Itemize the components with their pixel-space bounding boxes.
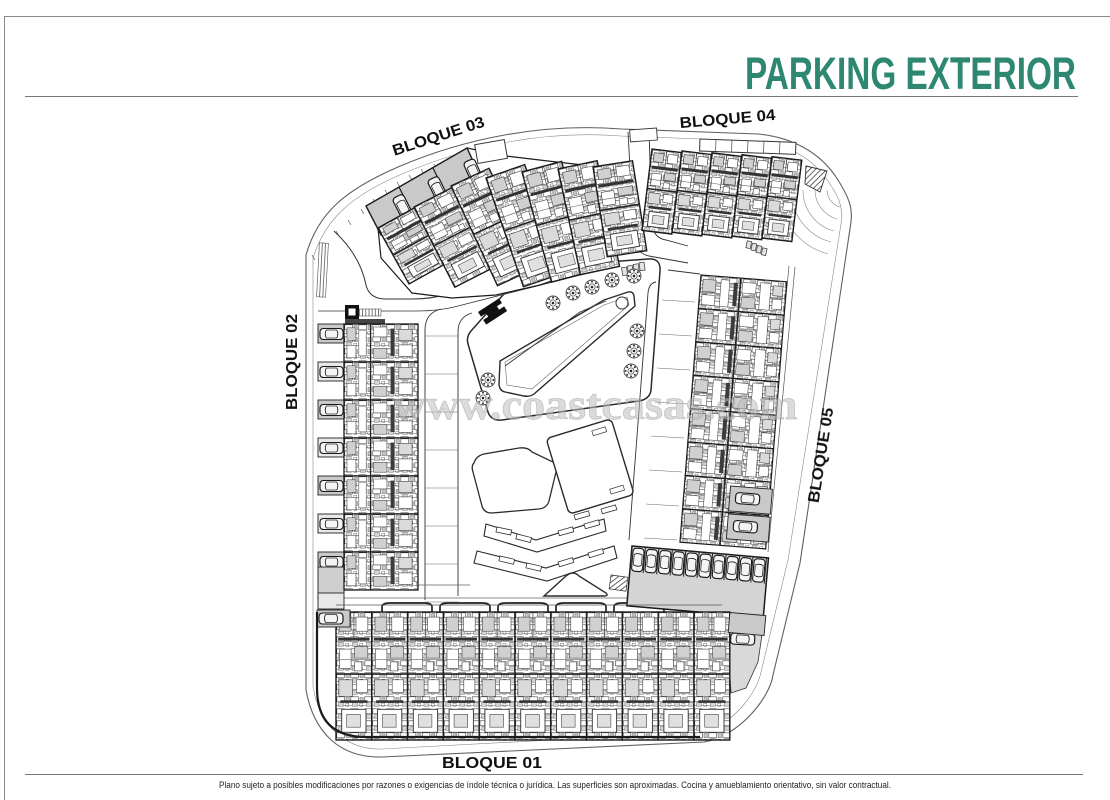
svg-text:www.coastcasas.com: www.coastcasas.com — [393, 382, 798, 429]
svg-text:BLOQUE 02: BLOQUE 02 — [284, 314, 301, 410]
svg-text:Plano sujeto a posibles modifi: Plano sujeto a posibles modificaciones p… — [219, 780, 891, 790]
svg-text:BLOQUE 01: BLOQUE 01 — [442, 755, 542, 772]
svg-text:PARKING EXTERIOR: PARKING EXTERIOR — [745, 48, 1076, 99]
